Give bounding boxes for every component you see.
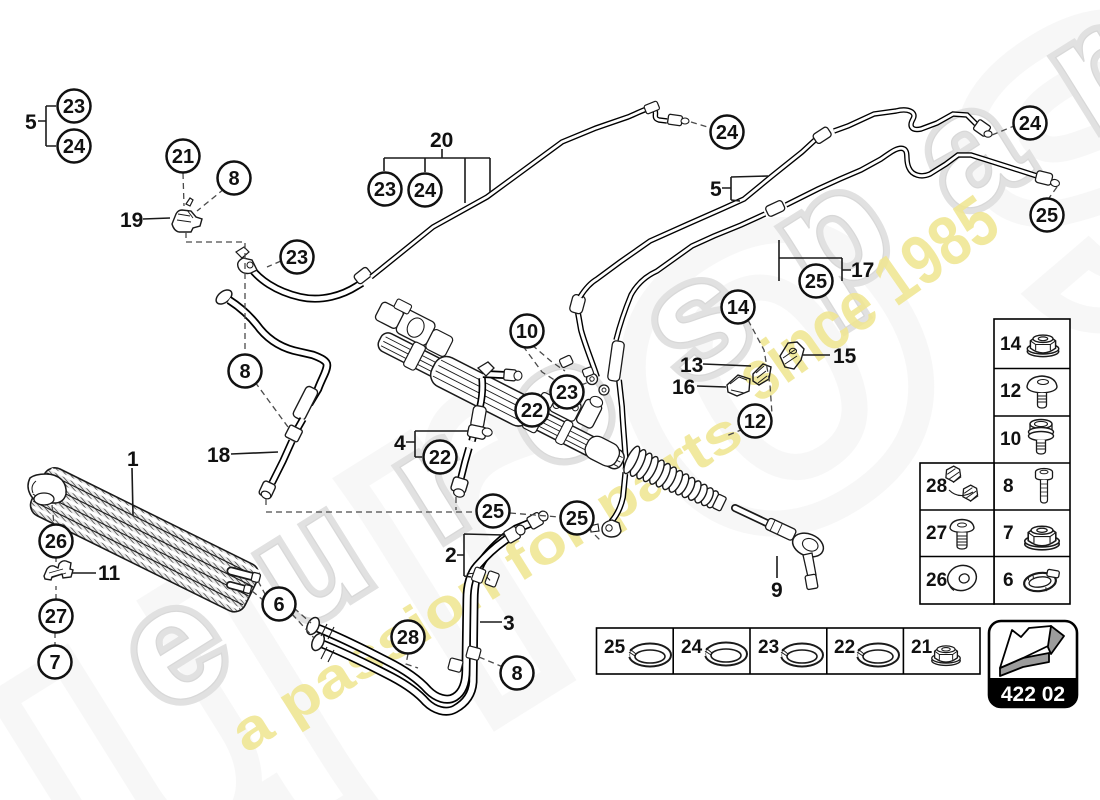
svg-text:22: 22 — [521, 400, 543, 422]
svg-text:27: 27 — [45, 606, 67, 628]
svg-text:17: 17 — [851, 259, 874, 282]
svg-text:5: 5 — [710, 178, 722, 201]
svg-text:23: 23 — [758, 637, 779, 658]
svg-text:23: 23 — [374, 179, 396, 201]
svg-text:15: 15 — [833, 345, 857, 368]
svg-text:18: 18 — [207, 444, 231, 467]
svg-text:7: 7 — [1003, 523, 1014, 544]
svg-text:20: 20 — [430, 129, 453, 152]
svg-text:23: 23 — [63, 96, 85, 118]
svg-text:24: 24 — [63, 136, 86, 158]
svg-text:13: 13 — [680, 354, 703, 377]
svg-text:24: 24 — [414, 180, 437, 202]
svg-text:10: 10 — [1000, 429, 1021, 450]
svg-text:19: 19 — [120, 209, 143, 232]
svg-text:2: 2 — [445, 544, 457, 567]
svg-text:10: 10 — [516, 321, 538, 343]
svg-text:28: 28 — [397, 627, 419, 649]
svg-text:12: 12 — [744, 411, 766, 433]
svg-text:8: 8 — [511, 663, 522, 685]
svg-text:4: 4 — [394, 432, 406, 455]
svg-text:3: 3 — [503, 612, 515, 635]
svg-text:28: 28 — [926, 476, 947, 497]
svg-text:16: 16 — [672, 376, 695, 399]
svg-text:422 02: 422 02 — [1001, 683, 1065, 706]
svg-text:11: 11 — [98, 562, 121, 585]
svg-text:8: 8 — [239, 361, 250, 383]
svg-text:1: 1 — [127, 448, 139, 471]
svg-text:26: 26 — [45, 531, 67, 553]
svg-text:24: 24 — [716, 122, 739, 144]
svg-text:22: 22 — [834, 637, 855, 658]
svg-text:25: 25 — [805, 271, 827, 293]
svg-text:25: 25 — [604, 637, 626, 658]
svg-text:14: 14 — [1000, 334, 1022, 355]
svg-text:8: 8 — [228, 168, 239, 190]
svg-text:7: 7 — [49, 652, 60, 674]
svg-text:25: 25 — [482, 501, 504, 523]
svg-text:27: 27 — [926, 523, 947, 544]
svg-text:24: 24 — [681, 637, 703, 658]
svg-text:5: 5 — [25, 111, 37, 134]
svg-text:25: 25 — [566, 508, 588, 530]
svg-text:21: 21 — [172, 146, 194, 168]
svg-text:23: 23 — [286, 247, 308, 269]
svg-text:26: 26 — [926, 570, 947, 591]
svg-text:8: 8 — [1003, 476, 1014, 497]
svg-text:14: 14 — [727, 297, 750, 319]
svg-text:12: 12 — [1000, 381, 1021, 402]
svg-text:21: 21 — [911, 637, 933, 658]
svg-text:23: 23 — [556, 382, 578, 404]
svg-text:9: 9 — [771, 579, 783, 602]
svg-text:25: 25 — [1036, 205, 1058, 227]
svg-text:22: 22 — [429, 447, 451, 469]
svg-text:6: 6 — [1003, 570, 1014, 591]
svg-text:6: 6 — [273, 594, 284, 616]
svg-text:24: 24 — [1019, 113, 1042, 135]
